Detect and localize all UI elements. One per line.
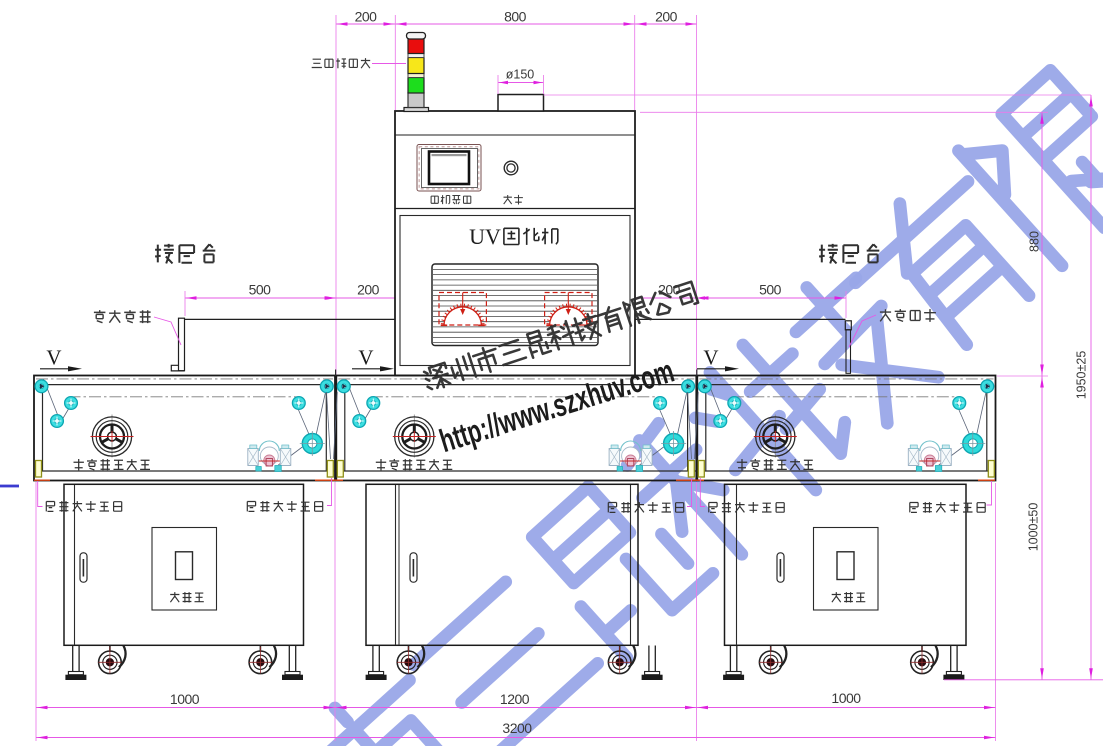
svg-text:UV: UV: [469, 224, 501, 249]
svg-text:1000: 1000: [831, 690, 861, 706]
svg-text:880: 880: [1028, 231, 1042, 252]
svg-text:1000: 1000: [170, 691, 200, 707]
svg-text:200: 200: [355, 9, 378, 25]
svg-text:1200: 1200: [500, 691, 530, 707]
svg-text:1950±25: 1950±25: [1075, 351, 1089, 400]
svg-text:800: 800: [504, 9, 527, 25]
svg-text:3200: 3200: [502, 720, 532, 736]
svg-text:1000±50: 1000±50: [1027, 503, 1041, 552]
svg-text:500: 500: [249, 282, 272, 298]
svg-text:ø150: ø150: [506, 68, 535, 82]
svg-text:V: V: [703, 346, 718, 370]
svg-text:200: 200: [655, 9, 678, 25]
svg-text:500: 500: [759, 282, 782, 298]
svg-text:200: 200: [658, 282, 681, 298]
svg-text:200: 200: [357, 282, 380, 298]
svg-text:V: V: [358, 346, 373, 370]
svg-text:V: V: [46, 346, 61, 370]
